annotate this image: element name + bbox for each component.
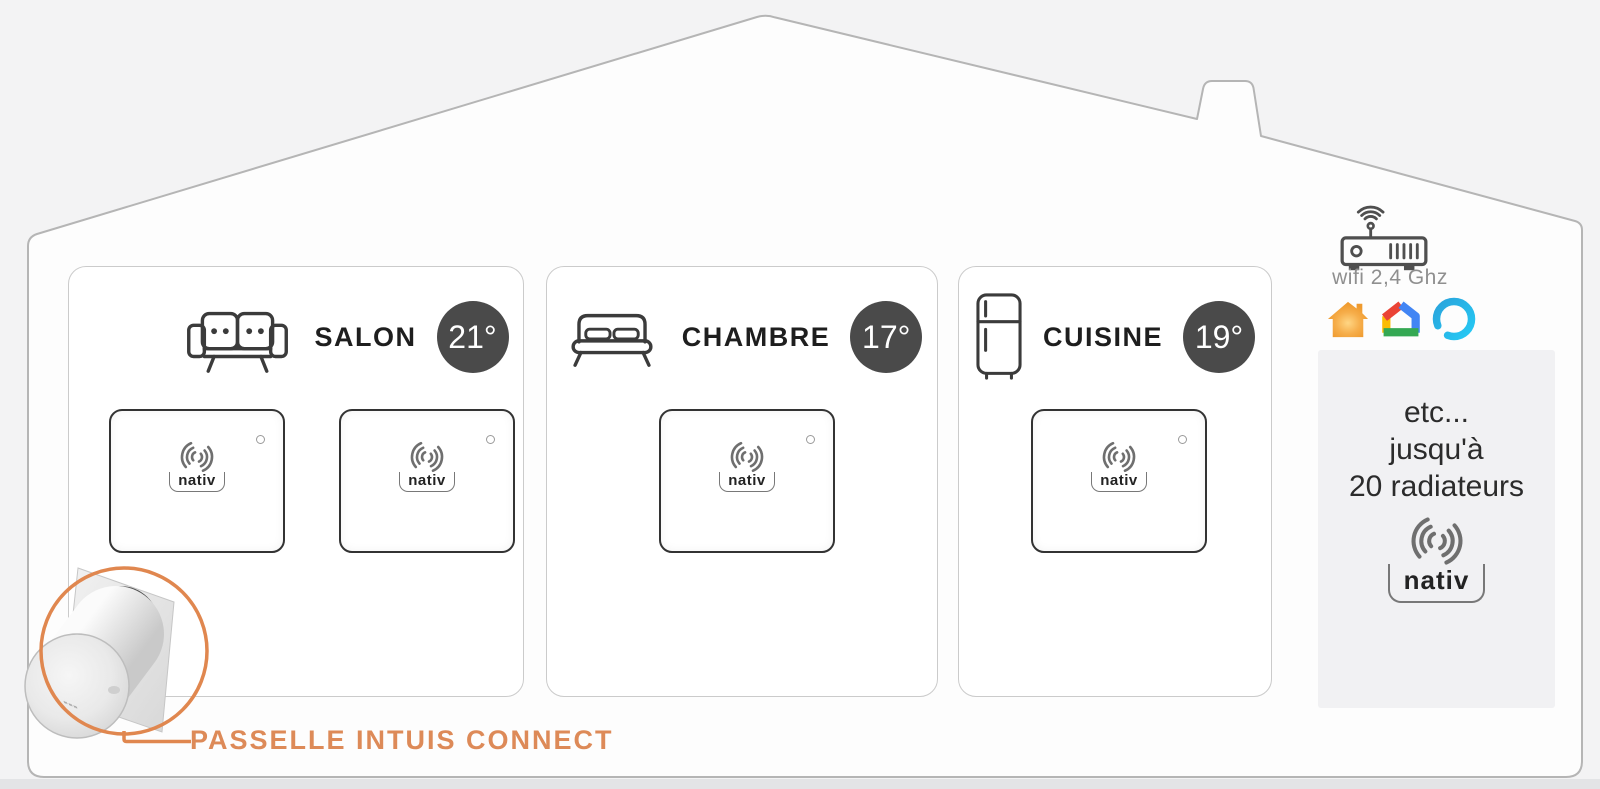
amazon-alexa-icon — [1431, 297, 1477, 341]
nativ-signal-icon — [174, 443, 220, 471]
room-header: CUISINE 19° — [959, 289, 1271, 385]
nativ-logo: nativ — [1033, 443, 1205, 492]
nativ-home-app-icon — [1325, 298, 1371, 340]
more-radiators-text: etc... jusqu'à 20 radiateurs — [1318, 394, 1555, 505]
nativ-signal-icon — [1096, 443, 1142, 471]
room-card-chambre: CHAMBRE 17° nativ — [546, 266, 938, 697]
wifi-band-label: wifi 2,4 Ghz — [1310, 266, 1470, 290]
nativ-wordmark: nativ — [1091, 472, 1147, 492]
fridge-icon — [975, 293, 1023, 381]
more-radiators-panel: etc... jusqu'à 20 radiateurs nativ — [1318, 350, 1555, 708]
radiator-device: nativ — [1031, 409, 1207, 553]
gateway-label: PASSELLE INTUIS CONNECT — [190, 725, 614, 756]
infographic-canvas: SALON 21° nativ — [0, 0, 1600, 789]
nativ-logo: nativ — [341, 443, 513, 492]
nativ-wordmark: nativ — [719, 472, 775, 492]
radiator-device: nativ — [659, 409, 835, 553]
temperature-badge: 19° — [1183, 301, 1255, 373]
sofa-icon — [180, 298, 295, 376]
room-header: CHAMBRE 17° — [547, 289, 937, 385]
panel-line-1: etc... — [1318, 394, 1555, 431]
panel-line-2: jusqu'à — [1318, 431, 1555, 468]
temperature-badge: 21° — [437, 301, 509, 373]
google-home-icon — [1379, 298, 1423, 340]
room-name-label: CUISINE — [1043, 322, 1163, 353]
nativ-signal-icon — [724, 443, 770, 471]
nativ-signal-icon — [404, 443, 450, 471]
panel-line-3: 20 radiateurs — [1318, 468, 1555, 505]
page-footer-strip — [0, 779, 1600, 789]
nativ-logo: nativ — [1318, 519, 1555, 603]
radiator-device: nativ — [109, 409, 285, 553]
nativ-wordmark: nativ — [1388, 564, 1486, 603]
bed-icon — [562, 303, 662, 371]
nativ-signal-icon — [1401, 519, 1473, 563]
nativ-wordmark: nativ — [169, 472, 225, 492]
nativ-logo: nativ — [661, 443, 833, 492]
room-name-label: CHAMBRE — [682, 322, 831, 353]
nativ-logo: nativ — [111, 443, 283, 492]
wifi-router-icon — [1334, 196, 1434, 274]
integrations-row — [1325, 297, 1477, 341]
room-name-label: SALON — [315, 322, 417, 353]
room-header: SALON 21° — [117, 289, 571, 385]
nativ-wordmark: nativ — [399, 472, 455, 492]
room-card-cuisine: CUISINE 19° nativ — [958, 266, 1272, 697]
temperature-badge: 17° — [850, 301, 922, 373]
radiator-device: nativ — [339, 409, 515, 553]
